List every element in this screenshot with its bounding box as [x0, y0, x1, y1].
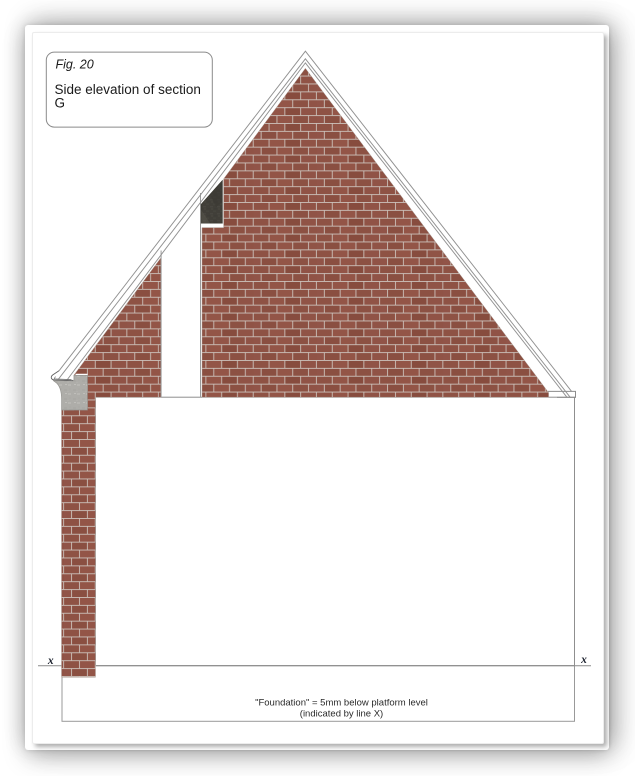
svg-text:Side elevation of section: Side elevation of section — [55, 82, 201, 97]
svg-text:x: x — [580, 654, 587, 666]
svg-text:x: x — [47, 655, 54, 667]
svg-text:G: G — [55, 96, 66, 111]
svg-text:(indicated by line X): (indicated by line X) — [300, 709, 383, 720]
svg-text:Fig. 20: Fig. 20 — [56, 58, 94, 72]
svg-text:"Foundation" = 5mm below platf: "Foundation" = 5mm below platform level — [255, 698, 428, 709]
